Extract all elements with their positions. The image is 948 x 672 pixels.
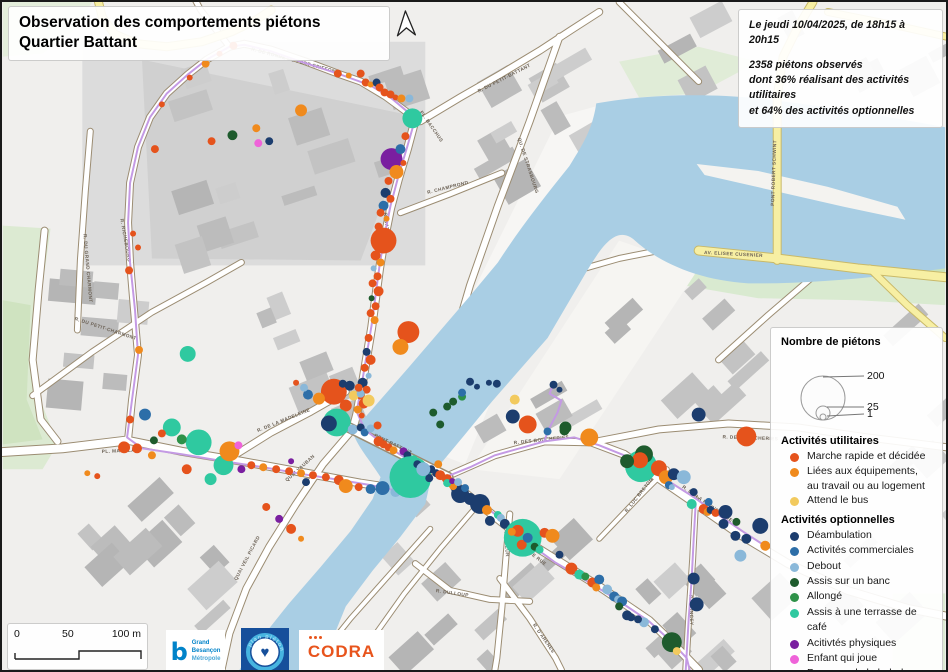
- observation-dot: [148, 451, 156, 459]
- observation-dot: [293, 380, 299, 386]
- observation-dot: [395, 144, 405, 154]
- observation-dot: [84, 470, 90, 476]
- scale-100m: 100 m: [112, 628, 141, 640]
- observation-dot: [374, 286, 384, 296]
- observation-dot: [275, 515, 283, 523]
- observation-dot: [374, 421, 382, 429]
- observation-dot: [557, 387, 563, 393]
- heart-icon: ♥: [261, 644, 270, 661]
- observation-dot: [429, 409, 437, 417]
- observation-dot: [367, 424, 375, 432]
- observation-dot: [126, 416, 134, 424]
- observation-dot: [712, 509, 720, 517]
- observation-dot: [247, 461, 255, 469]
- legend-item: Assis à une terrasse de café: [781, 605, 934, 636]
- observation-dot: [474, 384, 480, 390]
- legend-dot-swatch: [790, 468, 799, 477]
- observation-dot: [130, 231, 136, 237]
- observation-dot: [741, 534, 751, 544]
- observation-dot: [581, 573, 589, 581]
- size-legend-value: 200: [867, 370, 885, 382]
- observation-dot: [371, 228, 397, 254]
- size-legend-diagram: 200251: [781, 350, 931, 432]
- observation-dot: [760, 541, 770, 551]
- observation-dot: [390, 446, 398, 454]
- observation-dot: [506, 410, 520, 424]
- observation-dot: [377, 258, 385, 266]
- observation-dot: [449, 478, 455, 484]
- observation-dot: [556, 551, 564, 559]
- logo-plan-pieton: ♥ plan piéton: [241, 628, 289, 672]
- legend-dot-swatch: [790, 563, 799, 572]
- legend-item-label: Allongé: [807, 589, 934, 604]
- observation-dot: [367, 309, 375, 317]
- legend-item-label: Déambulation: [807, 528, 934, 543]
- legend-dot-swatch: [790, 593, 799, 602]
- observation-dot: [371, 316, 379, 324]
- legend-item: Attend le bus: [781, 493, 934, 508]
- stat-utilitaires-1: dont 36% réalisant des activités: [749, 73, 932, 88]
- legend-dot-swatch: [790, 547, 799, 556]
- observation-dot: [361, 364, 369, 372]
- observation-dot: [302, 478, 310, 486]
- observation-dot: [363, 395, 375, 407]
- title-box: Observation des comportements piétons Qu…: [8, 6, 390, 61]
- observation-dot: [510, 395, 520, 405]
- legend-dot-swatch: [790, 497, 799, 506]
- observation-dot: [523, 533, 533, 543]
- observation-dot: [359, 413, 365, 419]
- observation-dot: [135, 346, 143, 354]
- observation-dot: [734, 550, 746, 562]
- observation-dot: [298, 536, 304, 542]
- observation-dot: [632, 452, 648, 468]
- observation-dot: [580, 428, 598, 446]
- observation-dot: [732, 518, 740, 526]
- observation-dot: [550, 381, 558, 389]
- legend-dot-swatch: [790, 655, 799, 664]
- observation-dot: [615, 602, 623, 610]
- logo-grand-besancon: b Grand Besançon Métropole: [166, 630, 225, 672]
- observation-dot: [339, 479, 353, 493]
- observation-dot: [132, 443, 142, 453]
- info-box: Le jeudi 10/04/2025, de 18h15 à 20h15 23…: [738, 9, 943, 128]
- legend-item-label: Parcours de la balade urbaine: [807, 666, 934, 672]
- legend-item: Enfant qui joue: [781, 651, 934, 666]
- observation-dot: [365, 334, 373, 342]
- observation-dot: [454, 478, 462, 486]
- legend-dot-swatch: [790, 640, 799, 649]
- observation-dot: [687, 499, 697, 509]
- observation-dot: [493, 380, 501, 388]
- observation-dot: [402, 108, 422, 128]
- observation-dot: [234, 441, 242, 449]
- observation-dot: [482, 505, 492, 515]
- legend-item-label: Debout: [807, 559, 934, 574]
- observation-dot: [135, 245, 141, 251]
- observation-dot: [322, 473, 330, 481]
- observation-dot: [208, 137, 216, 145]
- legend-item: Debout: [781, 559, 934, 574]
- page-title: Observation des comportements piétons Qu…: [19, 13, 379, 54]
- observation-dot: [265, 137, 273, 145]
- observation-dot: [730, 531, 740, 541]
- observation-dot: [392, 94, 398, 100]
- observation-dot: [634, 615, 642, 623]
- observation-dot: [355, 483, 363, 491]
- legend-item-label: Marche rapide et décidée: [807, 449, 934, 464]
- legend-dot-swatch: [790, 609, 799, 618]
- observation-dot: [719, 505, 733, 519]
- observation-dot: [371, 265, 377, 271]
- observation-dot: [187, 75, 193, 81]
- observation-dot: [651, 625, 659, 633]
- stat-utilitaires-2: utilitaires: [749, 88, 932, 103]
- observation-dot: [313, 393, 325, 405]
- observation-date: Le jeudi 10/04/2025, de 18h15 à 20h15: [749, 18, 932, 49]
- observation-dot: [436, 420, 444, 428]
- observation-dot: [390, 165, 404, 179]
- observation-dot: [416, 462, 430, 476]
- observation-dot: [464, 493, 476, 505]
- observation-dot: [348, 424, 358, 434]
- observation-dot: [366, 484, 376, 494]
- observation-dot: [334, 70, 342, 78]
- scale-bar-graphic: [14, 643, 143, 663]
- observation-dot: [466, 378, 474, 386]
- observation-dot: [186, 429, 212, 455]
- observation-dot: [252, 124, 260, 132]
- observation-dot: [692, 408, 706, 422]
- observation-dot: [262, 503, 270, 511]
- observation-dot: [385, 177, 393, 185]
- legend-item-label: Liées aux équipements,: [807, 464, 934, 479]
- legend-item: Allongé: [781, 589, 934, 604]
- legend-item: Acitivtés physiques: [781, 636, 934, 651]
- observation-dot: [363, 348, 371, 356]
- observation-dot: [237, 465, 245, 473]
- observation-dot: [354, 406, 362, 414]
- observation-dot: [627, 613, 635, 621]
- logo-codra: CODRA: [299, 630, 384, 672]
- observation-dot: [458, 389, 466, 397]
- observation-dot: [182, 464, 192, 474]
- observation-dot: [536, 546, 544, 554]
- legend-item-label: Acitivtés physiques: [807, 636, 934, 651]
- observation-dot: [374, 272, 382, 280]
- observation-dot: [405, 94, 413, 102]
- legend-size-title: Nombre de piétons: [781, 336, 934, 348]
- observation-dot: [254, 139, 262, 147]
- legend-panel: Nombre de piétons 200251 Activités utili…: [770, 327, 943, 672]
- observation-dot: [592, 584, 600, 592]
- observation-dot: [180, 346, 196, 362]
- observation-dot: [688, 573, 700, 585]
- observation-dot: [752, 518, 768, 534]
- observation-dot: [519, 416, 537, 434]
- map-poster: R. DE RONDE DU FORT-GRIFFONR. BATTANTR. …: [0, 0, 948, 672]
- observation-dot: [286, 524, 296, 534]
- scale-0: 0: [14, 628, 20, 640]
- legend-optionnelles-title: Activités optionnelles: [781, 514, 934, 526]
- observation-dot: [355, 384, 363, 392]
- observation-dot: [485, 516, 495, 526]
- codra-label: CODRA: [308, 642, 375, 662]
- observation-dot: [546, 529, 560, 543]
- observation-dot: [434, 460, 442, 468]
- observation-dot: [357, 70, 365, 78]
- legend-dot-swatch: [790, 532, 799, 541]
- observation-dot: [288, 458, 294, 464]
- observation-dot: [705, 498, 713, 506]
- observation-dot: [321, 416, 337, 432]
- legend-item: Activités commerciales: [781, 543, 934, 558]
- observation-dot: [205, 473, 217, 485]
- codra-dots-icon: [309, 636, 322, 639]
- observation-dot: [150, 436, 158, 444]
- observation-dot: [392, 339, 408, 355]
- observation-dot: [736, 426, 756, 446]
- observation-dot: [594, 575, 604, 585]
- legend-item-label: Assis à une terrasse de café: [807, 605, 934, 636]
- observation-dot: [719, 519, 729, 529]
- legend-item-label: Attend le bus: [807, 493, 934, 508]
- observation-dot: [227, 130, 237, 140]
- observation-dot: [139, 409, 151, 421]
- observation-dot: [272, 465, 280, 473]
- observation-dot: [690, 488, 698, 496]
- observation-dot: [158, 429, 166, 437]
- legend-item: Déambulation: [781, 528, 934, 543]
- observation-dot: [309, 471, 317, 479]
- observation-dot: [508, 528, 516, 536]
- observation-dot: [486, 380, 492, 386]
- observation-dot: [346, 73, 352, 79]
- legend-item: Marche rapide et décidée: [781, 449, 934, 464]
- observation-dot: [461, 484, 469, 492]
- observation-dot: [376, 481, 390, 495]
- observation-dot: [544, 427, 552, 435]
- legend-utilitaires-title: Activités utilitaires: [781, 435, 934, 447]
- pedestrian-count: 2358 piétons observés: [749, 58, 932, 73]
- observation-dot: [125, 266, 133, 274]
- observation-dot: [620, 454, 634, 468]
- observation-dot: [259, 463, 267, 471]
- observation-dot: [369, 295, 375, 301]
- observation-dot: [369, 279, 377, 287]
- observation-dot: [673, 647, 681, 655]
- observation-dot: [297, 469, 305, 477]
- observation-dot: [300, 384, 308, 392]
- observation-dot: [559, 425, 569, 435]
- legend-dot-swatch: [790, 578, 799, 587]
- observation-dot: [366, 373, 372, 379]
- legend-item: Liées aux équipements,: [781, 464, 934, 479]
- observation-dot: [295, 104, 307, 116]
- legend-item-label: Activités commerciales: [807, 543, 934, 558]
- scale-bar: 0 50 100 m: [7, 623, 148, 670]
- observation-dot: [401, 132, 409, 140]
- observation-dot: [387, 195, 395, 203]
- observation-dot: [118, 441, 130, 453]
- stat-optionnelles: et 64% des activités optionnelles: [749, 104, 932, 119]
- legend-item-label: Assis sur un banc: [807, 574, 934, 589]
- observation-dot: [397, 94, 405, 102]
- observation-dot: [94, 473, 100, 479]
- observation-dot: [384, 216, 390, 222]
- observation-dot: [377, 209, 385, 217]
- legend-item: Assis sur un banc: [781, 574, 934, 589]
- legend-dot-swatch: [790, 453, 799, 462]
- observation-dot: [690, 597, 704, 611]
- scale-50: 50: [62, 628, 74, 640]
- grand-besancon-b-icon: b: [171, 640, 188, 664]
- observation-dot: [151, 145, 159, 153]
- observation-dot: [366, 355, 376, 365]
- observation-dot: [285, 467, 293, 475]
- observation-dot: [669, 484, 675, 490]
- observation-dot: [372, 302, 380, 310]
- observation-dot: [400, 160, 406, 166]
- observation-dot: [449, 398, 457, 406]
- observation-dot: [339, 380, 347, 388]
- observation-dot: [177, 434, 187, 444]
- legend-item-label-2: au travail ou au logement: [781, 480, 934, 494]
- legend-item-label: Enfant qui joue: [807, 651, 934, 666]
- observation-dot: [159, 101, 165, 107]
- size-legend-value: 1: [867, 408, 873, 420]
- observation-dot: [677, 470, 691, 484]
- legend-item: Parcours de la balade urbaine: [781, 666, 934, 672]
